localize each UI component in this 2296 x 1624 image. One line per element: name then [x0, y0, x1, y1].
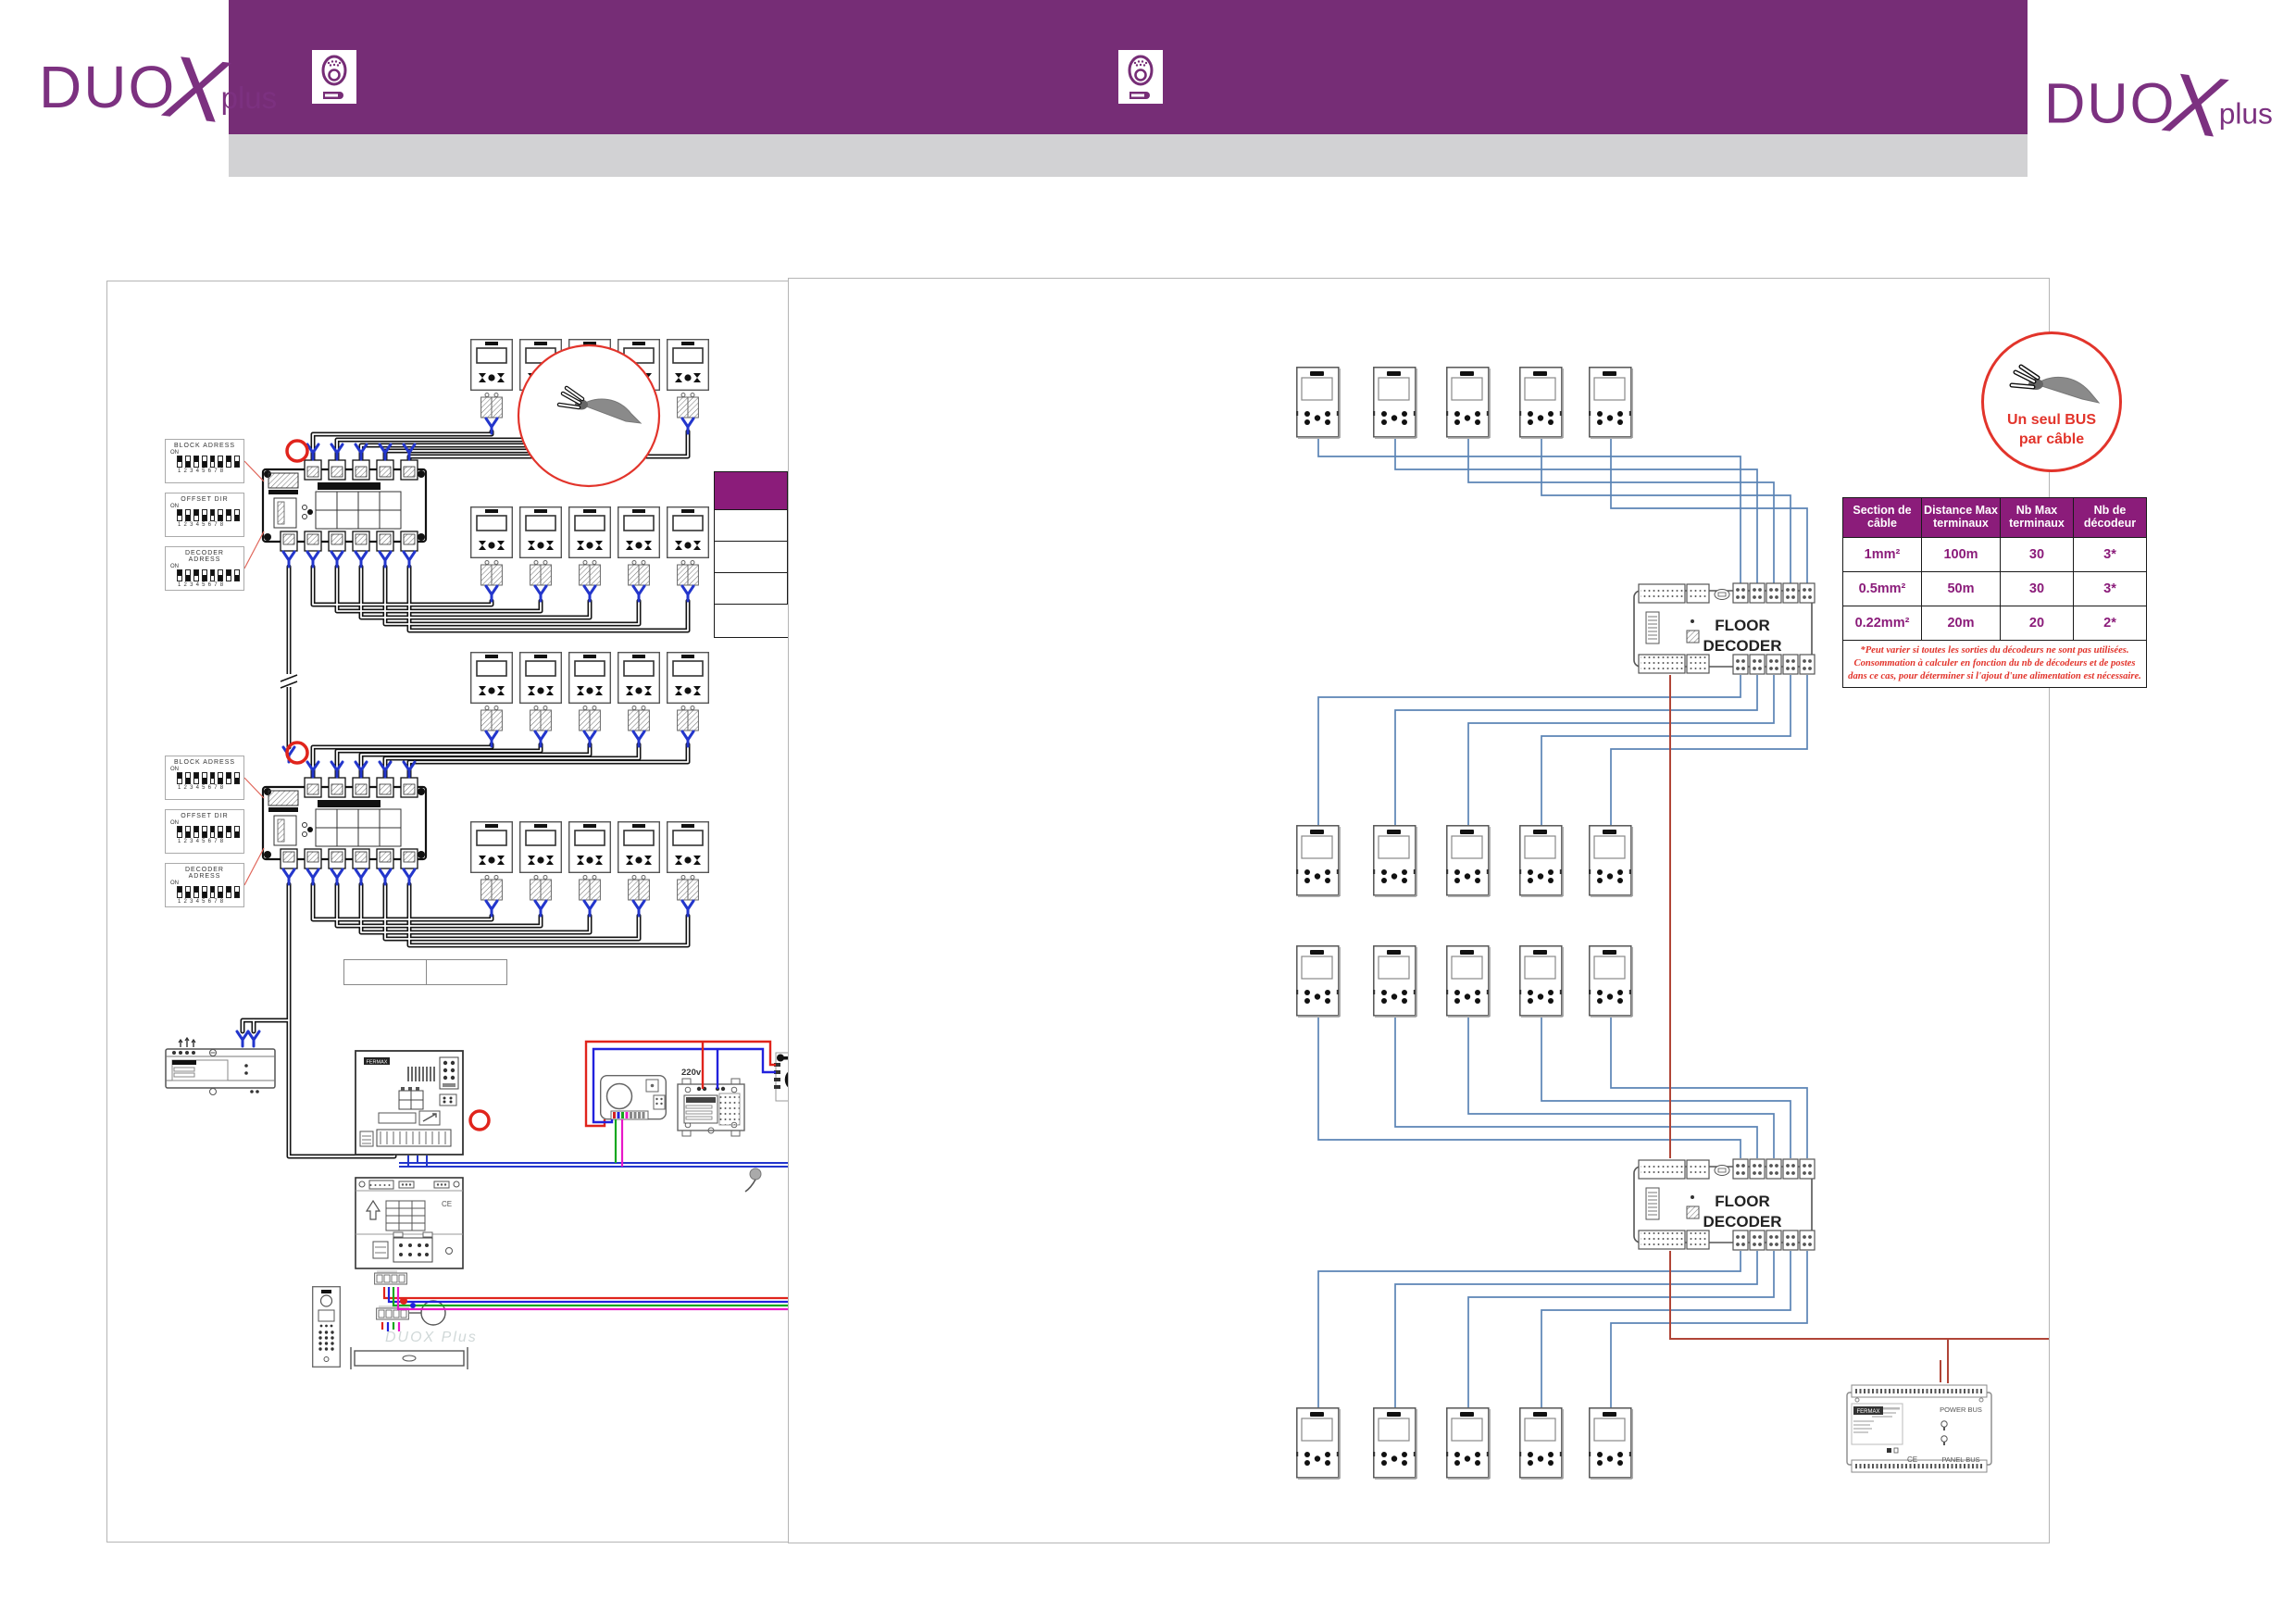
speaker-module — [601, 1076, 667, 1119]
dip-callout-decoder-address: DECODER ADRESS ON 12345678 — [165, 546, 244, 591]
video-monitor — [1589, 1408, 1632, 1479]
badge-text: par câble — [1984, 431, 2119, 448]
duox-distributor-2 — [263, 778, 426, 868]
audio-phone — [520, 507, 562, 558]
blue-splice-connector — [633, 586, 644, 601]
video-monitor — [1373, 1408, 1416, 1479]
dip-switches — [177, 772, 240, 784]
audio-phone — [471, 340, 513, 391]
dip-switches — [177, 886, 240, 898]
video-monitor — [1589, 946, 1632, 1017]
phone-connector — [530, 561, 552, 586]
table-footnote-line: Consommation à calculer en fonction du n… — [1843, 657, 2146, 670]
blue-splice-connector — [633, 901, 644, 916]
phone-connector — [678, 394, 699, 418]
audio-phone — [569, 507, 611, 558]
phone-connector — [580, 876, 601, 901]
audio-phone — [618, 822, 660, 873]
psu-top-label: POWER BUS — [1940, 1405, 1982, 1414]
dip-callout-offset-dir: OFFSET DIR ON 12345678 — [165, 809, 244, 854]
audio-phone — [520, 822, 562, 873]
phone-connector — [678, 706, 699, 731]
video-monitor — [1519, 368, 1563, 438]
video-monitor — [1589, 826, 1632, 896]
audio-phone — [471, 822, 513, 873]
video-monitor — [1519, 1408, 1563, 1479]
right-wiring-scheme-panel: FLOOR DECODER FLOOR DECODER FERMAX POWER… — [788, 278, 2050, 1543]
blue-splice-connector — [486, 418, 497, 433]
video-monitor — [1589, 368, 1632, 438]
empty-label-strip — [343, 959, 507, 985]
table-footnote-line: *Peut varier si toutes les sorties du dé… — [1843, 644, 2146, 657]
amplifier-frame-unit — [356, 1178, 463, 1268]
mounting-bracket — [351, 1347, 468, 1369]
audio-phone — [569, 822, 611, 873]
ce-mark: CE — [442, 1200, 452, 1208]
audio-phone — [618, 507, 660, 558]
wiring-connector — [375, 1270, 407, 1284]
logo-text: DUO — [2044, 75, 2176, 131]
red-circle-annotation — [287, 441, 307, 461]
doorbell-glyph — [316, 54, 353, 100]
logo-suffix: plus — [2219, 99, 2273, 129]
watermark: DUOX Plus — [385, 1330, 478, 1346]
din-power-supply — [166, 1038, 275, 1095]
logo-suffix: plus — [221, 82, 278, 113]
dip-switches — [177, 456, 240, 468]
floor-decoder-label: DECODER — [1703, 1213, 1781, 1230]
single-bus-badge: Un seul BUS par câble — [1981, 331, 2122, 472]
single-cable-badge — [518, 345, 659, 486]
bus-wiring-red — [1670, 675, 2049, 1383]
dip-callout-block-address: BLOCK ADRESS ON 12345678 — [165, 756, 244, 800]
blue-splice-connector — [682, 731, 693, 746]
blue-splice-connector — [682, 586, 693, 601]
audio-phone — [668, 822, 709, 873]
audio-phone — [618, 653, 660, 704]
floor-decoder-label: FLOOR — [1715, 617, 1770, 634]
catalog-page: DUOXplus DUOXplus — [0, 0, 2296, 1624]
dip-callout-decoder-address: DECODER ADRESS ON 12345678 — [165, 863, 244, 907]
phone-connector — [481, 561, 503, 586]
phone-connector — [629, 876, 650, 901]
central-unit — [356, 1051, 463, 1155]
audio-phone — [471, 653, 513, 704]
video-monitor — [1446, 946, 1490, 1017]
ce-mark: CE — [1907, 1455, 1917, 1464]
video-monitor — [1373, 826, 1416, 896]
video-monitor — [1373, 946, 1416, 1017]
video-monitor — [1519, 826, 1563, 896]
dip-switches — [177, 509, 240, 521]
right-wiring-diagram: FLOOR DECODER FLOOR DECODER FERMAX POWER… — [789, 279, 2049, 1543]
blue-splice-connector — [584, 586, 595, 601]
blue-splice-connector — [682, 418, 693, 433]
phone-connector — [629, 561, 650, 586]
blue-splice-connector — [535, 901, 546, 916]
blue-splice-connector — [633, 731, 644, 746]
video-monitor — [1296, 946, 1340, 1017]
doorbell-glyph — [1122, 54, 1159, 100]
entry-panel-icon — [1118, 50, 1163, 104]
video-monitor — [1296, 826, 1340, 896]
blue-splice-connector — [584, 731, 595, 746]
phone-connector — [678, 876, 699, 901]
phone-connector — [481, 876, 503, 901]
blue-splice-connector — [584, 901, 595, 916]
blue-splice-connector — [682, 901, 693, 916]
dip-callout-offset-dir: OFFSET DIR ON 12345678 — [165, 493, 244, 537]
dip-switches — [177, 826, 240, 838]
video-monitor — [1446, 826, 1490, 896]
audio-phone — [668, 340, 709, 391]
phone-connector — [481, 706, 503, 731]
wiring-connector — [377, 1305, 409, 1319]
floor-decoder-label: FLOOR — [1715, 1193, 1770, 1210]
audio-phone — [569, 653, 611, 704]
phone-connector — [629, 706, 650, 731]
dip-callout-leaders — [244, 461, 264, 885]
badge-text: Un seul BUS — [1984, 412, 2119, 429]
audio-phone — [668, 653, 709, 704]
cable-spec-table: Section de câble Distance Max terminaux … — [1842, 497, 2147, 688]
blue-splice-connector — [486, 586, 497, 601]
psu-brand: FERMAX — [1856, 1409, 1879, 1415]
video-monitor — [1446, 368, 1490, 438]
duox-plus-logo: DUOXplus — [2044, 73, 2273, 131]
entry-panel-icon — [312, 50, 356, 104]
blue-splice-connector — [535, 586, 546, 601]
blue-splice-connector — [486, 901, 497, 916]
video-monitor — [1519, 946, 1563, 1017]
phone-connector — [530, 876, 552, 901]
table-footnote-line: dans ce cas, pour déterminer si l'ajout … — [1843, 670, 2146, 683]
red-circle-annotation — [470, 1111, 489, 1130]
cable-grommet — [750, 1168, 761, 1180]
video-monitor — [1373, 368, 1416, 438]
phone-connector — [580, 561, 601, 586]
audio-phone — [668, 507, 709, 558]
phone-connector — [580, 706, 601, 731]
central-unit-brand: FERMAX — [367, 1060, 388, 1066]
psu-bottom-label: PANEL BUS — [1941, 1455, 1979, 1464]
dip-switches — [177, 569, 240, 581]
duox-plus-logo: DUOXplus — [39, 56, 277, 117]
mains-voltage-label: 220v — [681, 1068, 702, 1078]
video-monitor — [1296, 368, 1340, 438]
phone-connector — [678, 561, 699, 586]
duox-distributor-1 — [263, 460, 426, 551]
mains-power-supply — [678, 1079, 744, 1136]
logo-text: DUO — [39, 57, 176, 117]
audio-phone — [471, 507, 513, 558]
audio-phone — [520, 653, 562, 704]
small-entry-panel — [313, 1287, 341, 1368]
cable-icon — [2004, 347, 2104, 414]
header-gray-band — [229, 134, 2028, 177]
phone-connector — [530, 706, 552, 731]
blue-splice-connector — [535, 731, 546, 746]
dip-callout-block-address: BLOCK ADRESS ON 12345678 — [165, 439, 244, 483]
video-monitor — [1446, 1408, 1490, 1479]
floor-decoder-label: DECODER — [1703, 637, 1781, 655]
video-monitor — [1296, 1408, 1340, 1479]
blue-splice-connector — [486, 731, 497, 746]
phone-connector — [481, 394, 503, 418]
